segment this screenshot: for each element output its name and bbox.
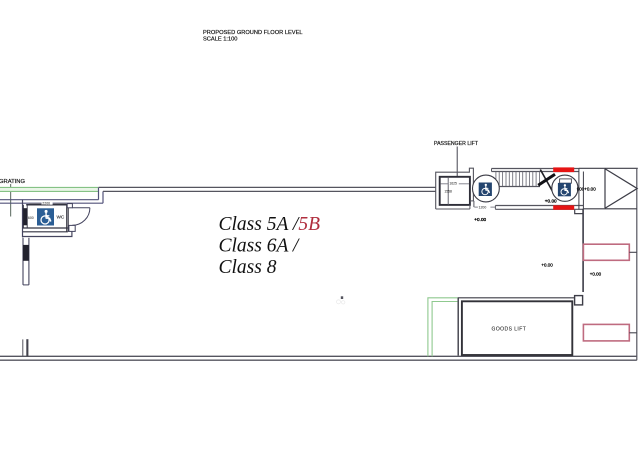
svg-text:Class 6A /: Class 6A / (219, 236, 300, 257)
svg-text:1200: 1200 (479, 206, 487, 210)
svg-text:GOODS LIFT: GOODS LIFT (492, 327, 527, 333)
svg-text:900+0.00: 900+0.00 (577, 186, 596, 191)
svg-text:PASSENGER LIFT: PASSENGER LIFT (434, 141, 479, 147)
svg-text:WC: WC (57, 214, 65, 219)
svg-text:GRATING: GRATING (0, 179, 25, 185)
svg-text:1625: 1625 (449, 181, 457, 185)
svg-text:SCALE 1:100: SCALE 1:100 (203, 37, 237, 43)
svg-text:+0.00: +0.00 (541, 263, 553, 268)
svg-text:+0.00: +0.00 (545, 198, 557, 203)
svg-text:1558: 1558 (444, 189, 452, 193)
svg-text:2200: 2200 (42, 201, 50, 205)
svg-text:+0.00: +0.00 (590, 272, 602, 277)
svg-text:+0.00: +0.00 (474, 217, 486, 222)
svg-text:Class 8: Class 8 (219, 257, 277, 278)
svg-text:Class 5A /5B: Class 5A /5B (219, 214, 321, 235)
svg-text:600: 600 (28, 216, 34, 220)
svg-text:PROPOSED GROUND FLOOR LEVEL: PROPOSED GROUND FLOOR LEVEL (203, 30, 303, 36)
